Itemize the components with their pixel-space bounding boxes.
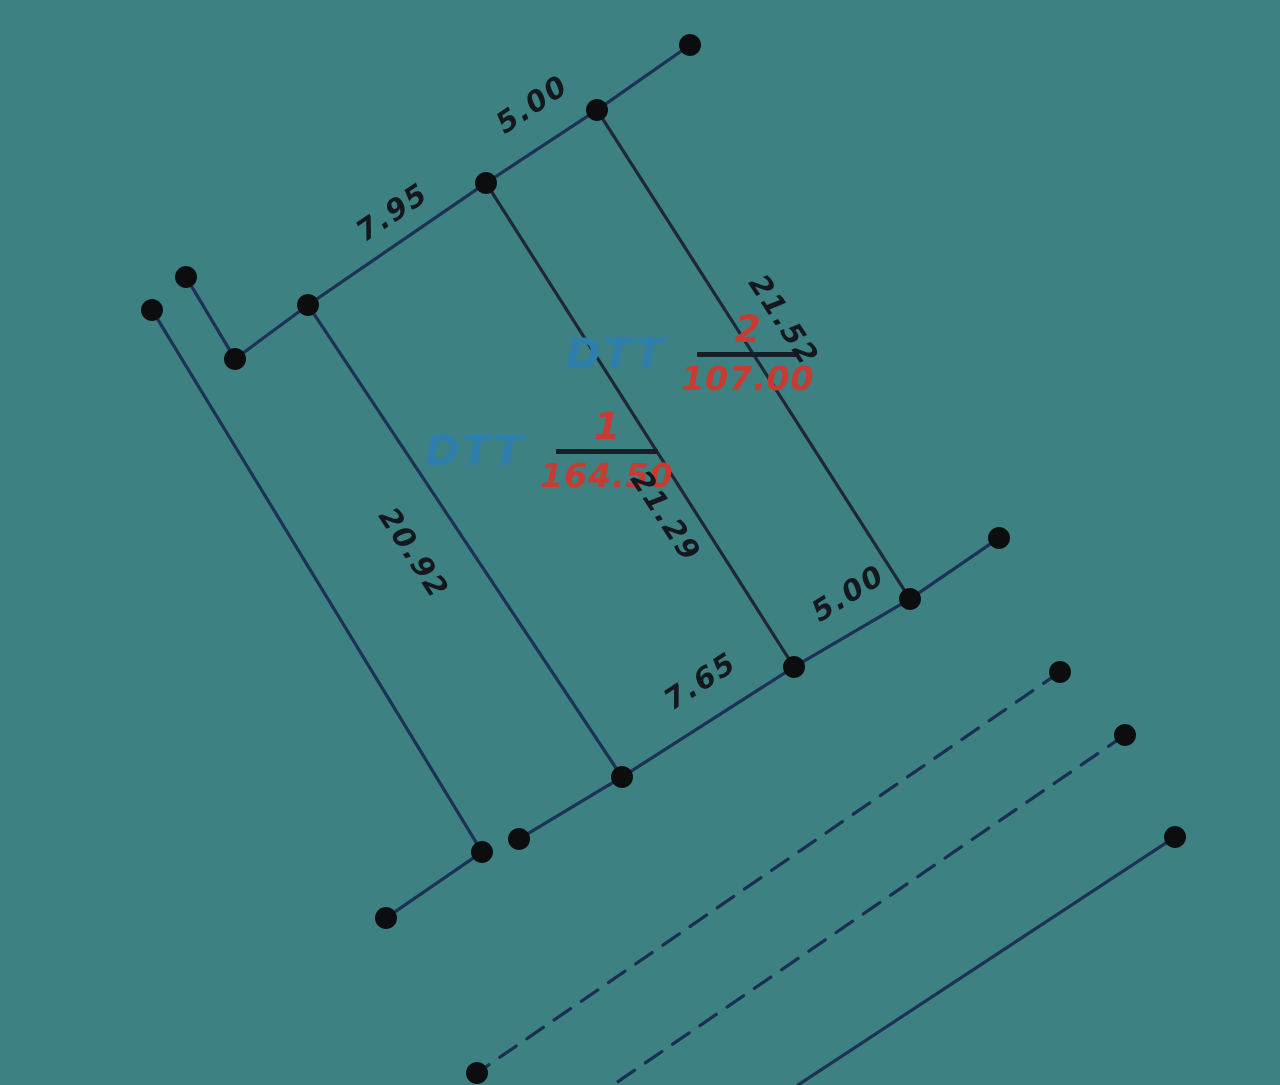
vertex-dot-10	[988, 527, 1010, 549]
road-edge-solid	[798, 837, 1175, 1085]
vertex-dot-2	[586, 99, 608, 121]
survey-canvas	[0, 0, 1280, 1085]
boundary-bottom	[519, 538, 999, 839]
vertex-dot-4	[297, 294, 319, 316]
vertex-dot-12	[783, 656, 805, 678]
road-edge-dashed-1	[477, 672, 1060, 1073]
survey-drawing: DTT 1 164.50 DTT 2 107.00 5.007.9521.522…	[0, 0, 1280, 1085]
vertex-dot-15	[1049, 661, 1071, 683]
vertex-dot-13	[611, 766, 633, 788]
vertex-dot-18	[1164, 826, 1186, 848]
vertex-dot-7	[141, 299, 163, 321]
road-edge-dashed-2	[613, 735, 1125, 1085]
parcel2-right-edge	[597, 110, 910, 599]
parcel1-left-edge	[308, 305, 622, 777]
vertex-dot-11	[899, 588, 921, 610]
vertex-dot-8	[471, 841, 493, 863]
vertex-dot-17	[1114, 724, 1136, 746]
boundary-top	[186, 45, 690, 359]
vertex-dot-1	[679, 34, 701, 56]
vertex-dot-6	[175, 266, 197, 288]
boundary-left	[152, 310, 482, 918]
parcel-shared-edge	[486, 183, 794, 667]
vertex-dot-14	[508, 828, 530, 850]
vertex-dot-16	[466, 1062, 488, 1084]
vertex-dot-9	[375, 907, 397, 929]
vertex-dot-3	[475, 172, 497, 194]
vertex-dot-5	[224, 348, 246, 370]
